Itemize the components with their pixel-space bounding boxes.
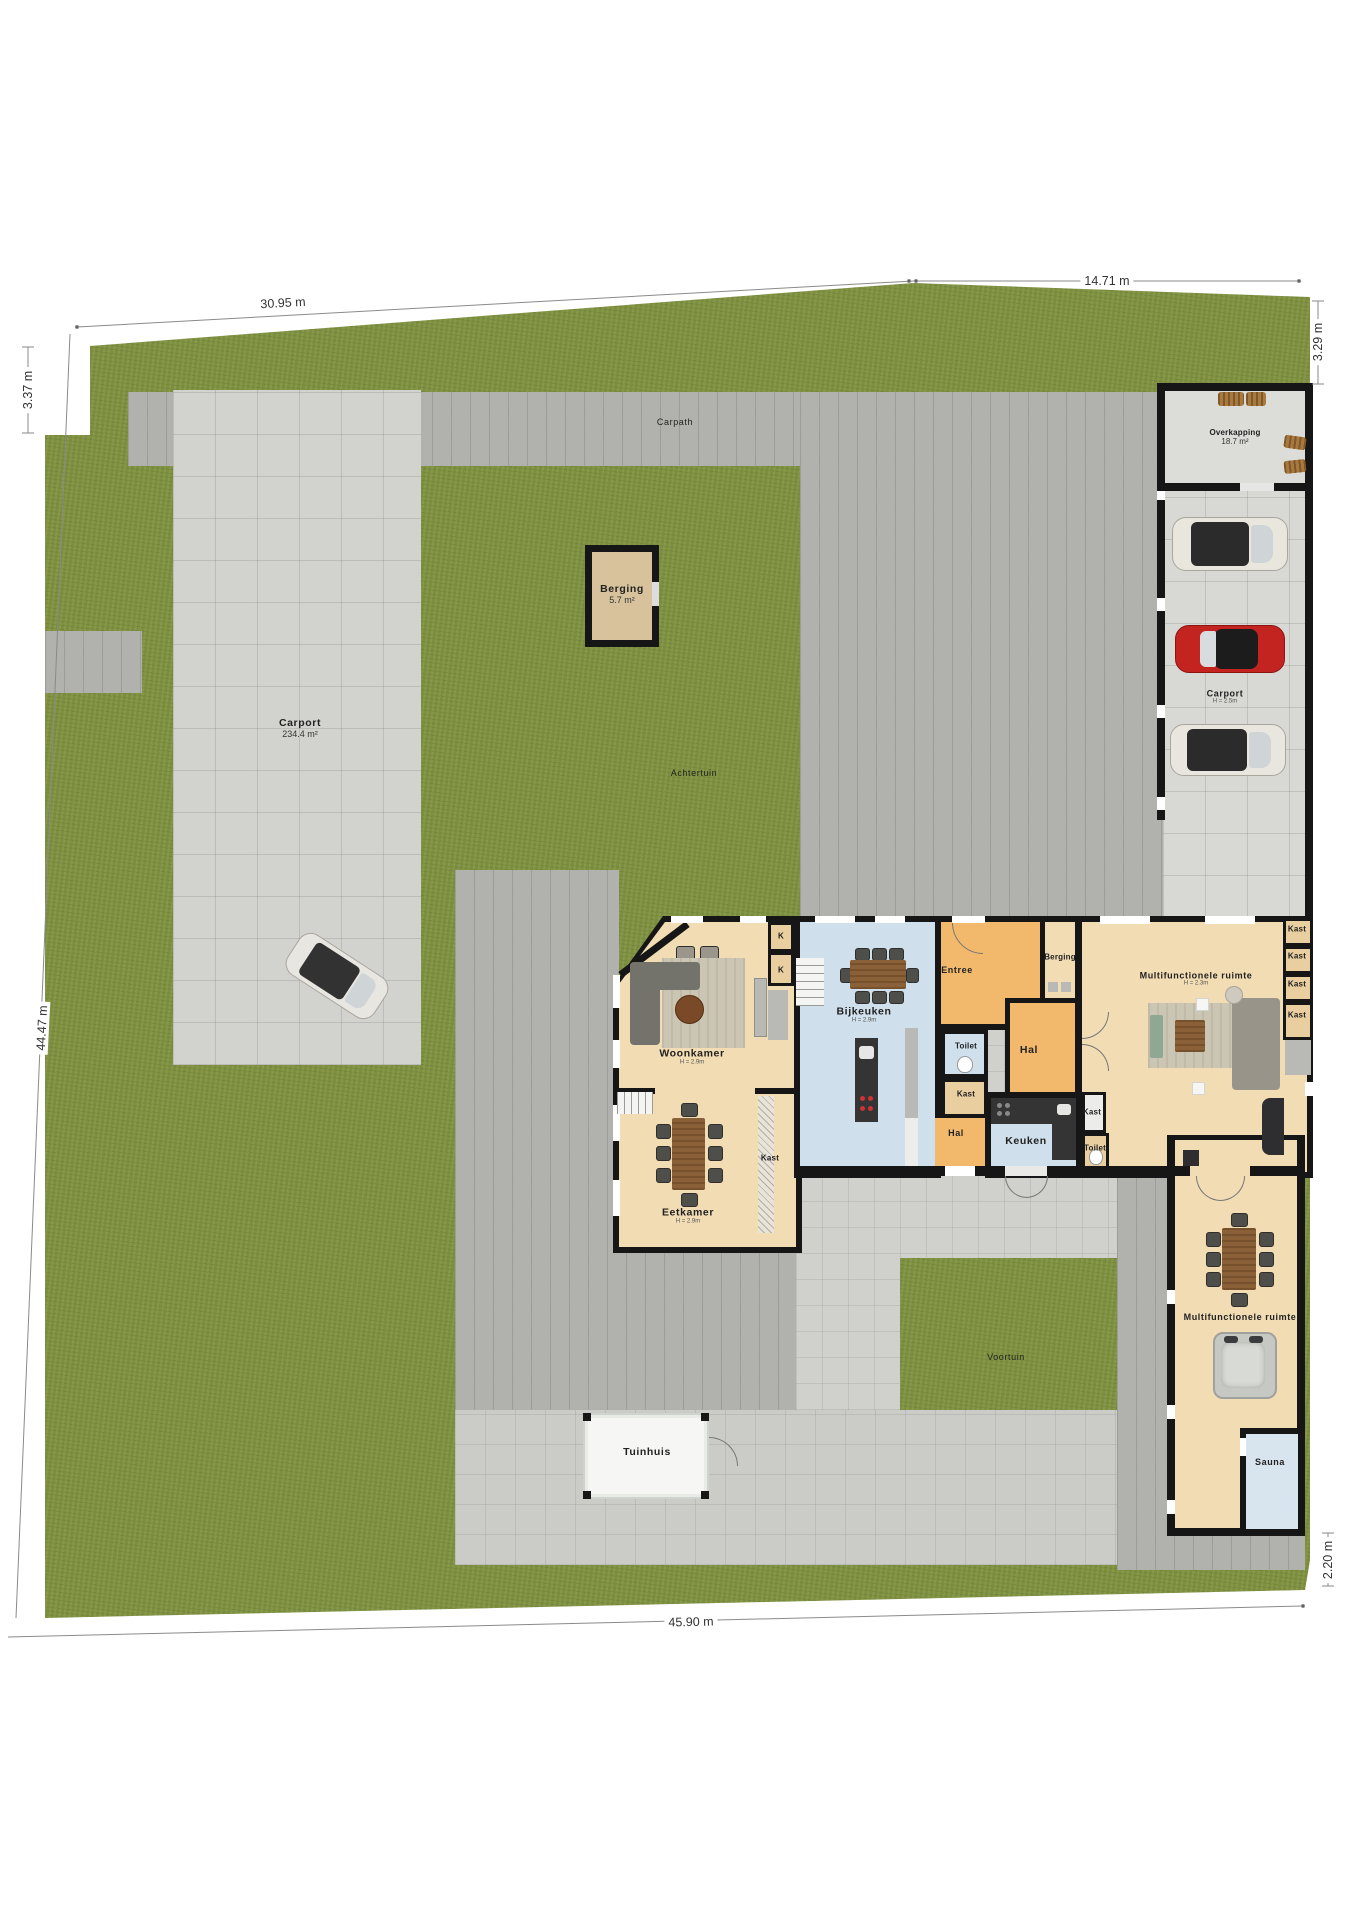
chair — [1259, 1232, 1274, 1247]
car-windshield — [1200, 631, 1216, 667]
overkapping-name: Overkapping — [1209, 428, 1260, 437]
chair — [681, 1193, 698, 1207]
multi2-label: Multifunctionele ruimte — [1184, 1312, 1297, 1322]
multi1-coffee-table — [1175, 1020, 1205, 1052]
chair — [656, 1146, 671, 1161]
multi1-bench — [1150, 1015, 1163, 1058]
car-windshield — [1251, 525, 1273, 563]
multi1-right-door-gap — [1305, 1082, 1313, 1096]
hal-lower-room — [935, 1118, 990, 1172]
chair — [708, 1146, 723, 1161]
car-roof — [1191, 522, 1249, 566]
keuken-label: Keuken — [1005, 1135, 1047, 1147]
eetkamer-kast-label: Kast — [761, 1153, 779, 1162]
car-roof — [1187, 729, 1247, 771]
dim-top-right: 14.71 m — [1080, 274, 1133, 288]
berging-shed-area: 5.7 m² — [600, 595, 644, 605]
eetkamer-opening — [655, 1088, 755, 1100]
bijkeuken-table — [850, 960, 906, 989]
hot-tub-headrest — [1249, 1336, 1263, 1343]
sauna-label: Sauna — [1255, 1457, 1285, 1467]
kast-col-label-1: Kast — [1288, 924, 1306, 933]
berging-inner-label: Berging — [1044, 952, 1076, 961]
wing-opening — [1190, 1166, 1250, 1176]
woonkamer-name: Woonkamer — [659, 1048, 724, 1060]
dim-top-left: 30.95 m — [256, 295, 310, 312]
carport-left-area: 234.4 m² — [279, 729, 321, 739]
overkapping-door-gap — [1240, 483, 1274, 491]
car-roof — [1214, 629, 1258, 669]
carport-right-wall — [1305, 383, 1313, 922]
woonkamer-window — [613, 975, 620, 1008]
bijkeuken-window — [815, 916, 855, 923]
entree-door-gap — [952, 916, 985, 923]
achtertuin-label: Achtertuin — [671, 768, 718, 778]
toilet-upper-room — [941, 1030, 988, 1078]
piano — [1262, 1098, 1284, 1155]
chair — [681, 1103, 698, 1117]
carport-right-height: H = 2.5m — [1207, 699, 1244, 706]
bijkeuken-stairs — [796, 958, 824, 1006]
tuinhuis-corner — [583, 1413, 591, 1421]
voortuin-lawn — [900, 1258, 1117, 1410]
chair — [855, 991, 870, 1004]
keuken-burner — [997, 1103, 1002, 1108]
white-suv-top — [1172, 517, 1288, 571]
multi1-window — [1205, 916, 1255, 924]
sauna-door-gap — [1240, 1438, 1246, 1456]
firewood-logs — [1246, 392, 1266, 406]
keuken-burner — [1005, 1111, 1010, 1116]
multi1-sofa — [1232, 998, 1280, 1090]
sauna-room — [1240, 1428, 1298, 1529]
bijkeuken-name: Bijkeuken — [836, 1006, 891, 1018]
chair — [656, 1168, 671, 1183]
hal-lower-label: Hal — [948, 1128, 964, 1138]
west-house-paving — [455, 870, 619, 1247]
chair — [1259, 1272, 1274, 1287]
berging-shelf — [1061, 982, 1071, 992]
eetkamer-label: Eetkamer H = 2.9m — [662, 1207, 714, 1226]
chair — [906, 968, 919, 983]
chair — [1231, 1293, 1248, 1307]
multi1-height: H = 2.3m — [1140, 981, 1253, 988]
chair — [708, 1124, 723, 1139]
kast-col-label-3: Kast — [1288, 979, 1306, 988]
wing-window — [1167, 1405, 1175, 1419]
eetkamer-height: H = 2.9m — [662, 1219, 714, 1226]
tuinhuis-label: Tuinhuis — [623, 1446, 671, 1458]
dim-left-side: 44.47 m — [34, 1001, 51, 1055]
multi1-label: Multifunctionele ruimte H = 2.3m — [1140, 970, 1253, 987]
hal-center-room — [1005, 998, 1080, 1098]
overkapping-area: 18.7 m² — [1209, 437, 1260, 446]
dim-right-bottom: 2.20 m — [1321, 1537, 1335, 1583]
firewood-logs — [1283, 459, 1306, 474]
bijkeuken-window — [875, 916, 905, 923]
woonkamer-sofa-horizontal — [630, 962, 700, 990]
island-burner — [868, 1106, 873, 1111]
chair — [1206, 1252, 1221, 1267]
firewood-logs — [1218, 392, 1244, 406]
toilet-upper-label: Toilet — [955, 1041, 977, 1050]
chair — [656, 1124, 671, 1139]
kast-col-label-2: Kast — [1288, 951, 1306, 960]
eetkamer-kast-strip — [758, 1096, 774, 1233]
carport-post-gap — [1157, 598, 1165, 611]
kast-room-4 — [1283, 1002, 1313, 1040]
multi1-window — [1100, 916, 1150, 924]
k-sideboard — [768, 990, 788, 1040]
woonkamer-sideboard — [754, 978, 767, 1037]
woonkamer-label: Woonkamer H = 2.9m — [659, 1048, 724, 1067]
bijkeuken-patio-door-gap — [1005, 1166, 1047, 1176]
carpath-label: Carpath — [657, 417, 693, 427]
tuinhuis-corner — [701, 1413, 709, 1421]
woonkamer-window — [740, 916, 766, 923]
chair — [1206, 1272, 1221, 1287]
multi1-white-square — [1192, 1082, 1205, 1095]
dim-left-top: 3.37 m — [21, 367, 35, 413]
chair — [1231, 1213, 1248, 1227]
chair — [872, 991, 887, 1004]
wing-side-path — [1117, 1178, 1167, 1570]
entree-label: Entree — [941, 965, 973, 975]
berging-shed-door — [652, 582, 659, 606]
white-suv-bottom — [1170, 724, 1286, 776]
car-windshield — [1249, 732, 1271, 768]
bijkeuken-height: H = 2.9m — [836, 1018, 891, 1025]
kast-keuken-label: Kast — [1083, 1107, 1101, 1116]
wing-window — [1167, 1500, 1175, 1514]
overkapping-label: Overkapping 18.7 m² — [1209, 428, 1260, 446]
woonkamer-window — [671, 916, 703, 923]
woonkamer-height: H = 2.9m — [659, 1060, 724, 1067]
hal-center-label: Hal — [1020, 1044, 1038, 1056]
multi1-side-table — [1225, 986, 1243, 1004]
tuinhuis-corner — [583, 1491, 591, 1499]
island-sink — [859, 1046, 874, 1059]
hot-tub-basin — [1221, 1342, 1265, 1388]
keuken-burner — [1005, 1103, 1010, 1108]
eetkamer-name: Eetkamer — [662, 1207, 714, 1219]
carport-left-name: Carport — [279, 717, 321, 729]
kitchen-island — [855, 1038, 878, 1122]
woonkamer-coffee-table — [675, 995, 704, 1024]
toilet-fixture — [957, 1056, 973, 1073]
hot-tub-headrest — [1224, 1336, 1238, 1343]
kast-col-label-4: Kast — [1288, 1010, 1306, 1019]
kast-upper-label: Kast — [957, 1089, 975, 1098]
multi1-white-square — [1196, 998, 1209, 1011]
k-closet-label-1: K — [778, 931, 784, 940]
bijkeuken-label: Bijkeuken H = 2.9m — [836, 1006, 891, 1025]
chair — [708, 1168, 723, 1183]
wing-dining-table — [1222, 1228, 1256, 1290]
toilet-lower-label: Toilet — [1084, 1143, 1106, 1152]
wing-window — [1167, 1290, 1175, 1304]
south-eetkamer-paving — [455, 1247, 805, 1410]
red-sports-car — [1175, 625, 1285, 673]
stair-landing — [1285, 1040, 1311, 1075]
carport-post-gap — [1157, 705, 1165, 718]
eetkamer-stairs — [617, 1092, 653, 1114]
bijkeuken-counter — [905, 1028, 918, 1118]
island-burner — [860, 1096, 865, 1101]
carport-right-label: Carport H = 2.5m — [1207, 688, 1244, 705]
below-wing-path — [1117, 1530, 1305, 1570]
dim-bottom: 45.90 m — [664, 1614, 717, 1629]
k-closet-label-2: K — [778, 965, 784, 974]
carport-top-wall — [1157, 383, 1313, 391]
rear-cobble-paving — [800, 392, 1163, 922]
keuken-burner — [997, 1111, 1002, 1116]
carport-post-gap — [1157, 797, 1165, 810]
berging-shed-label: Berging 5.7 m² — [600, 583, 644, 605]
island-burner — [868, 1096, 873, 1101]
driveway-stub — [45, 631, 142, 693]
carport-left-label: Carport 234.4 m² — [279, 717, 321, 739]
chair — [889, 991, 904, 1004]
site-plan-canvas: Carpath Carport 234.4 m² Achtertuin Berg… — [0, 0, 1358, 1920]
chair — [1206, 1232, 1221, 1247]
sauna-floor — [1246, 1434, 1298, 1529]
chair — [1259, 1252, 1274, 1267]
front-concrete-paving — [455, 1410, 1117, 1565]
carport-right-name: Carport — [1207, 688, 1244, 698]
hal-exit-door-gap — [945, 1166, 975, 1176]
woonkamer-window — [613, 1040, 620, 1068]
berging-shed-name: Berging — [600, 583, 644, 595]
voortuin-label: Voortuin — [987, 1352, 1025, 1362]
overkapping-divider-wall — [1157, 483, 1313, 491]
tuinhuis-corner — [701, 1491, 709, 1499]
eetkamer-table — [672, 1118, 705, 1190]
island-burner — [860, 1106, 865, 1111]
dim-right-top: 3.29 m — [1311, 319, 1325, 365]
multi1-name: Multifunctionele ruimte — [1140, 970, 1253, 980]
keuken-sink — [1057, 1104, 1071, 1115]
hot-tub — [1213, 1332, 1277, 1399]
eetkamer-window — [613, 1180, 620, 1216]
bijkeuken-counter-white — [905, 1118, 918, 1166]
berging-shelf — [1048, 982, 1058, 992]
